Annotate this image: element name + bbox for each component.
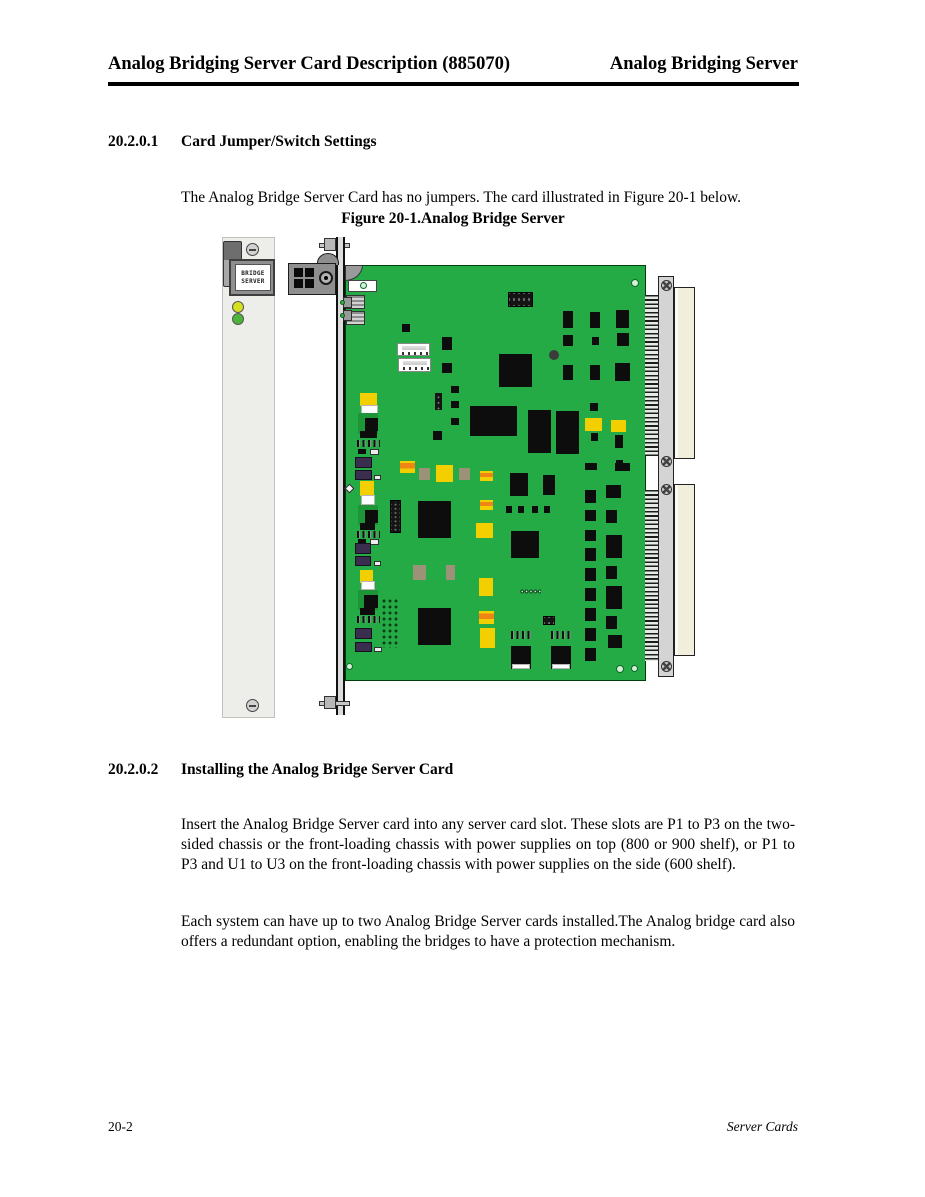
pcb-component-ic [606, 535, 622, 558]
pcb-component-ic [543, 475, 555, 495]
pcb-component-hdr [543, 616, 555, 625]
pcb-component-ic [511, 531, 539, 558]
pcb-component-tan [419, 468, 430, 480]
pcb-component-wht [512, 664, 530, 669]
pcb-component-ic [585, 628, 596, 641]
pcb-component-ic [563, 365, 573, 380]
pcb-component-ic [451, 418, 459, 425]
panel-label: BRIDGE SERVER [235, 264, 271, 291]
pcb-component-ic [590, 403, 598, 411]
pcb-component-ic [433, 431, 442, 440]
page-footer: 20-2 Server Cards [108, 1119, 798, 1135]
pcb-component-wconn [397, 343, 430, 356]
pcb-component-ic [615, 435, 623, 448]
rail-screw [661, 456, 672, 467]
pcb-component-ic [365, 418, 378, 431]
pcb-component-pads [357, 616, 380, 623]
section-heading-1: 20.2.0.1 Card Jumper/Switch Settings [108, 133, 798, 151]
panel-screw-top [246, 243, 259, 256]
card-front-bar [336, 237, 345, 715]
pcb-component-ic [506, 506, 512, 513]
pcb-component-tan [446, 565, 455, 580]
pcb-component-ic [585, 608, 596, 621]
connector-socket [305, 279, 314, 288]
pcb-component-wpad [374, 647, 382, 652]
pcb-component-ic [532, 506, 538, 513]
pcb-component-ic [358, 449, 366, 454]
pcb-component-wht [361, 495, 375, 505]
pcb-component-ic [510, 473, 528, 496]
pcb-component-ic [585, 568, 596, 581]
panel-label-line2: SERVER [236, 278, 270, 286]
pcb-component-wpad [374, 561, 381, 566]
front-panel: BRIDGE SERVER [222, 237, 275, 718]
body-paragraph: Each system can have up to two Analog Br… [181, 912, 795, 952]
pcb-component-yel [479, 578, 493, 596]
section-number: 20.2.0.1 [108, 133, 181, 151]
section-title: Card Jumper/Switch Settings [181, 133, 376, 151]
backplane-connector-bottom [674, 484, 695, 656]
pcb-component-ic [606, 510, 617, 523]
pcb-component-ic [585, 588, 596, 601]
pcb-component-ic [365, 510, 378, 523]
pcb-component-ic [360, 608, 375, 615]
rail-screw [661, 280, 672, 291]
body-paragraph: The Analog Bridge Server Card has no jum… [181, 188, 795, 208]
pcb-component-ic [606, 485, 621, 498]
pcb-component-ic [360, 523, 375, 530]
pcb-component-pur [355, 457, 372, 468]
panel-label-holder: BRIDGE SERVER [229, 259, 275, 296]
pcb-component-ic [606, 586, 622, 609]
section-number: 20.2.0.2 [108, 761, 181, 779]
section-heading-2: 20.2.0.2 Installing the Analog Bridge Se… [108, 761, 798, 779]
pcb-component-ic [592, 337, 599, 345]
backplane-connector-rail [658, 276, 674, 677]
pcb-component-ic [518, 506, 524, 513]
pcb-component-ocap [480, 500, 493, 510]
connector-socket [294, 279, 303, 288]
pcb-component-ring [360, 282, 367, 289]
card-clip-top [324, 238, 336, 251]
rail-screw [661, 661, 672, 672]
pcb-component-yel [360, 481, 374, 496]
pcb-component-hole [549, 350, 559, 360]
figure-illustration: BRIDGE SERVER [222, 237, 700, 719]
pcb-component-ic [364, 595, 378, 608]
pcb-component-pads [357, 531, 380, 538]
pcb-component-yel [480, 628, 495, 648]
panel-screw-bottom [246, 699, 259, 712]
page-header: Analog Bridging Server Card Description … [108, 54, 798, 75]
header-title-right: Analog Bridging Server [610, 54, 798, 75]
edge-fingers-bottom [645, 490, 658, 661]
pcb-component-wconn [398, 358, 431, 372]
pcb-component-ic [418, 608, 451, 645]
document-page: Analog Bridging Server Card Description … [0, 0, 925, 1197]
pcb-component-yel [585, 418, 602, 431]
pcb-component-ic [544, 506, 550, 513]
section-title: Installing the Analog Bridge Server Card [181, 761, 453, 779]
pcb-component-ic [451, 401, 459, 408]
pcb-component-ic [402, 324, 410, 332]
pcb-component-yel [611, 420, 626, 432]
pcb-component-yel [476, 523, 493, 538]
pcb-component-ic [585, 510, 596, 521]
pcb-component-ic [418, 501, 451, 538]
led-green [232, 313, 244, 325]
pcb-component-ic [617, 333, 629, 346]
pcb-component-pads [511, 631, 531, 639]
pcb-component-vias [381, 598, 399, 648]
led-yellow [232, 301, 244, 313]
pcb-component-pads [551, 631, 571, 639]
pcb-component-ocap [479, 611, 494, 624]
pcb-component-ic [585, 530, 596, 541]
pcb-component-ic [360, 431, 377, 438]
pcb-component-hdr2 [390, 500, 401, 533]
pcb-component-pur [355, 470, 372, 480]
pcb-component-wpad [370, 539, 379, 545]
pcb-component-vhdr [435, 393, 442, 410]
pcb-component-pur [355, 642, 372, 652]
pcb-component-ic [590, 312, 600, 328]
pcb-component-grn-dot [340, 300, 345, 305]
pcb-component-ic [470, 406, 517, 436]
pcb-component-coil [520, 588, 541, 595]
pcb-component-ring [346, 663, 353, 670]
panel-label-line1: BRIDGE [236, 270, 270, 278]
pcb-component-ic [528, 410, 551, 453]
pcb-component-ocap [400, 461, 415, 473]
pcb-component-ic [442, 363, 452, 373]
pcb-component-ic [606, 616, 617, 629]
pcb-component-ic [585, 548, 596, 561]
pcb-component-ic [563, 335, 573, 346]
pcb-component-pads [357, 440, 380, 447]
pcb-component-wht [552, 664, 570, 669]
pcb-component-ic [451, 386, 459, 393]
pcb-component-ic [585, 490, 596, 503]
pcb-component-ic [591, 433, 598, 441]
pcb-component-pur [355, 543, 371, 554]
pcb-component-ic [616, 310, 629, 328]
body-paragraph: Insert the Analog Bridge Server card int… [181, 815, 795, 875]
pcb-component-ic [615, 463, 630, 471]
pcb-component-ic [615, 363, 630, 381]
card-clip-bottom [324, 696, 336, 709]
connector-socket [294, 268, 303, 277]
header-rule [108, 82, 799, 86]
connector-jack [319, 271, 333, 285]
pcb-component-wpad [370, 449, 379, 455]
pcb-component-ring [631, 665, 638, 672]
pcb-component-ic [556, 411, 579, 454]
pcb-component-wht [361, 581, 375, 590]
connector-socket [305, 268, 314, 277]
pcb-component-tan [413, 565, 426, 580]
pcb-component-ic [608, 635, 622, 648]
pcb-component-ic [585, 463, 597, 470]
backplane-connector-top [674, 287, 695, 459]
pcb-component-ic [585, 648, 596, 661]
front-connector [288, 263, 336, 295]
pcb-component-ic [606, 566, 617, 579]
header-title-left: Analog Bridging Server Card Description … [108, 54, 510, 75]
pcb-component-ring [631, 279, 639, 287]
pcb-component-ocap [480, 471, 493, 481]
pcb-component-ic [499, 354, 532, 387]
pcb-component-grn-dot [340, 313, 345, 318]
pcb-component-hdr [508, 292, 533, 307]
pcb-component-ring [616, 665, 624, 673]
edge-fingers-top [645, 295, 658, 456]
figure-caption: Figure 20-1.Analog Bridge Server [108, 210, 798, 228]
pcb-component-yel [436, 465, 453, 482]
pcb-component-wpad [374, 475, 381, 480]
pcb-component-ic [442, 337, 452, 350]
pcb-component-ic [590, 365, 600, 380]
page-number: 20-2 [108, 1119, 133, 1135]
pcb-component-tan [459, 468, 470, 480]
rail-screw [661, 484, 672, 495]
pcb-component-pur [355, 628, 372, 639]
pcb-component-ic [563, 311, 573, 328]
footer-section-name: Server Cards [727, 1119, 798, 1135]
pcb-component-pur [355, 556, 371, 566]
